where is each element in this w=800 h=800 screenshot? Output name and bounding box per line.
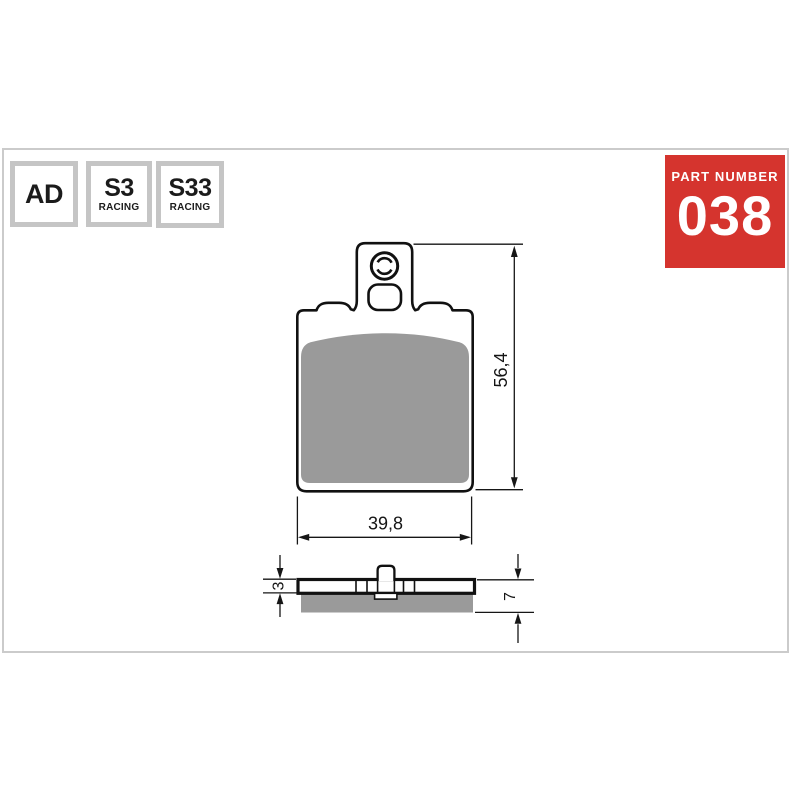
arrowhead-down	[511, 477, 518, 488]
friction-material	[301, 333, 469, 483]
backplate-side	[298, 580, 475, 594]
product-diagram-page: AD S3 RACING S33 RACING PART NUMBER 038	[0, 0, 800, 800]
arrowhead-down	[277, 568, 284, 579]
tab-notch	[375, 593, 397, 599]
arrowhead-up	[511, 246, 518, 257]
total-thickness-label: 7	[502, 592, 519, 601]
arrowhead-left	[298, 534, 309, 541]
arrowhead-up	[515, 613, 522, 624]
arrowhead-up	[277, 593, 284, 604]
arrowhead-right	[460, 534, 471, 541]
side-view	[298, 566, 475, 613]
height-dimension-label: 56,4	[491, 352, 511, 387]
tab-side	[378, 566, 395, 581]
backplate-thickness-label: 3	[271, 581, 288, 590]
front-view	[297, 243, 472, 491]
dimension-backplate-thickness: 3	[263, 555, 300, 617]
dimension-total-thickness: 7	[475, 554, 534, 643]
technical-drawing: 56,4 39,8 3	[0, 0, 800, 800]
width-dimension-label: 39,8	[368, 514, 403, 534]
dimension-width: 39,8	[297, 497, 471, 545]
arrowhead-down	[515, 569, 522, 580]
